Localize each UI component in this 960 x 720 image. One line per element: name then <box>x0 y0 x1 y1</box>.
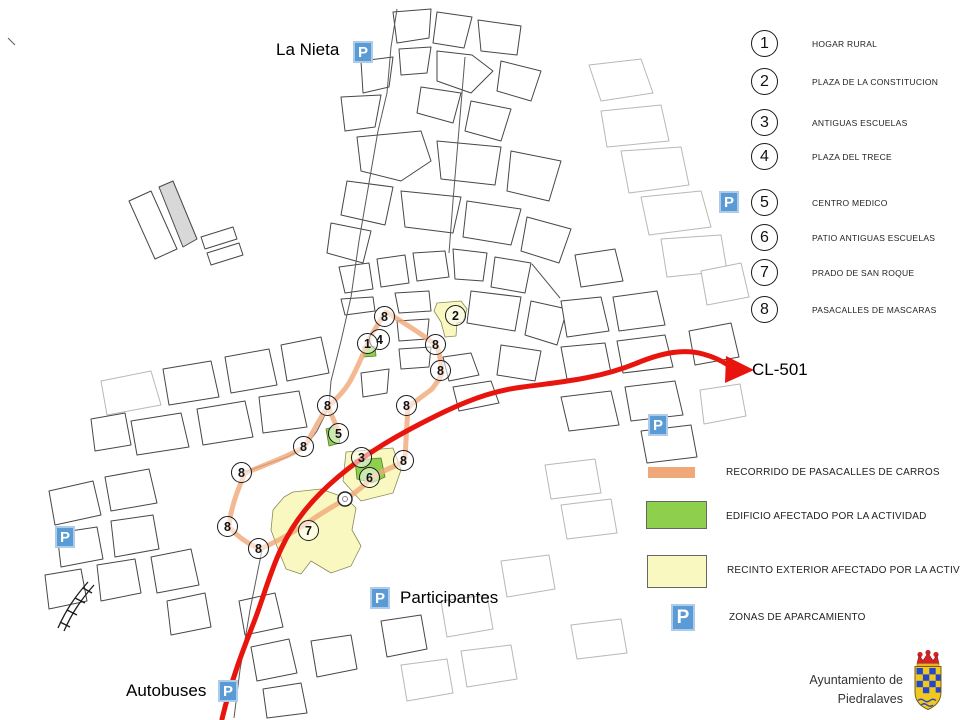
map-marker-8: 8 <box>374 306 395 327</box>
parking-icon: P <box>370 587 390 609</box>
label-participantes: Participantes <box>400 588 498 608</box>
map-marker-3: 3 <box>351 447 372 468</box>
map-marker-5: 5 <box>328 423 349 444</box>
parking-icon: P <box>671 604 695 631</box>
parking-icon: P <box>218 680 238 702</box>
parking-icon: P <box>55 526 75 548</box>
label-cl-501: CL-501 <box>752 360 808 380</box>
map-marker-1: 1 <box>357 333 378 354</box>
map-marker-8: 8 <box>317 395 338 416</box>
label-la-nieta: La Nieta <box>276 40 339 60</box>
map-marker-8: 8 <box>293 436 314 457</box>
map-marker-8: 8 <box>396 395 417 416</box>
map-marker-8: 8 <box>231 462 252 483</box>
parking-icon: P <box>648 414 668 436</box>
map-marker-2: 2 <box>445 305 466 326</box>
map-marker-7: 7 <box>298 520 319 541</box>
map-marker-8: 8 <box>425 334 446 355</box>
parking-icon: P <box>353 41 373 63</box>
map-slide: 82418888583868878PPPPP La Nieta CL-501 P… <box>0 0 960 720</box>
map-marker-8: 8 <box>217 516 238 537</box>
label-autobuses: Autobuses <box>126 681 206 701</box>
map-marker-6: 6 <box>359 467 380 488</box>
map-marker-8: 8 <box>393 450 414 471</box>
map-markers-layer: 82418888583868878PPPPP <box>0 0 960 720</box>
map-marker-8: 8 <box>430 360 451 381</box>
map-marker-8: 8 <box>248 538 269 559</box>
